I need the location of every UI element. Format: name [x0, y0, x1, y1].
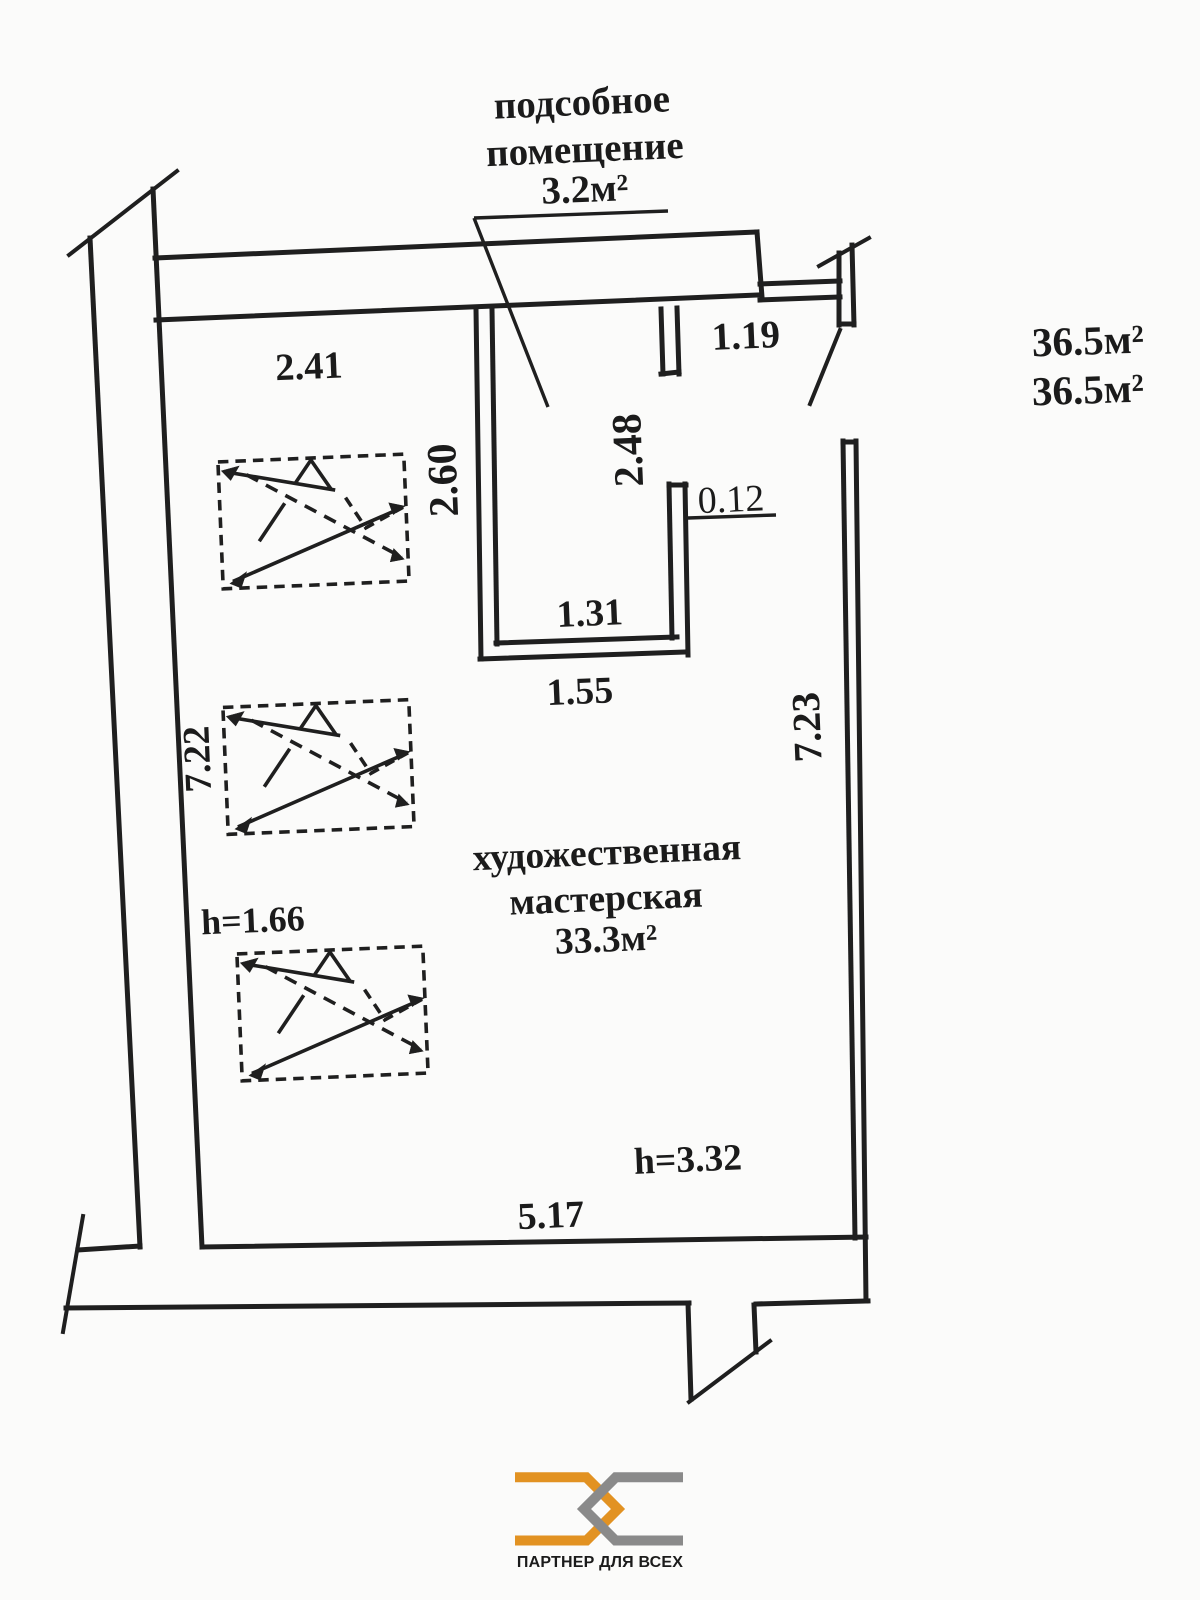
svg-text:1.55: 1.55 — [546, 669, 614, 714]
svg-text:36.5м²: 36.5м² — [1031, 315, 1145, 365]
svg-text:подсобное: подсобное — [493, 77, 671, 127]
svg-text:33.3м²: 33.3м² — [554, 917, 658, 962]
svg-text:36.5м²: 36.5м² — [1031, 364, 1145, 414]
svg-text:1.19: 1.19 — [711, 313, 781, 359]
svg-text:7.23: 7.23 — [783, 691, 831, 763]
svg-text:2.48: 2.48 — [604, 412, 653, 487]
svg-text:мастерская: мастерская — [509, 875, 704, 924]
svg-text:2.41: 2.41 — [274, 344, 343, 389]
svg-text:3.2м²: 3.2м² — [540, 166, 629, 213]
svg-text:h=3.32: h=3.32 — [633, 1137, 742, 1182]
svg-text:ПАРТНЕР ДЛЯ ВСЕХ: ПАРТНЕР ДЛЯ ВСЕХ — [517, 1554, 683, 1571]
svg-text:5.17: 5.17 — [517, 1193, 585, 1238]
svg-text:h=1.66: h=1.66 — [200, 898, 305, 942]
svg-text:1.31: 1.31 — [556, 591, 624, 636]
svg-text:7.22: 7.22 — [175, 725, 220, 793]
svg-text:2.60: 2.60 — [419, 442, 468, 517]
svg-text:художественная: художественная — [472, 827, 742, 879]
